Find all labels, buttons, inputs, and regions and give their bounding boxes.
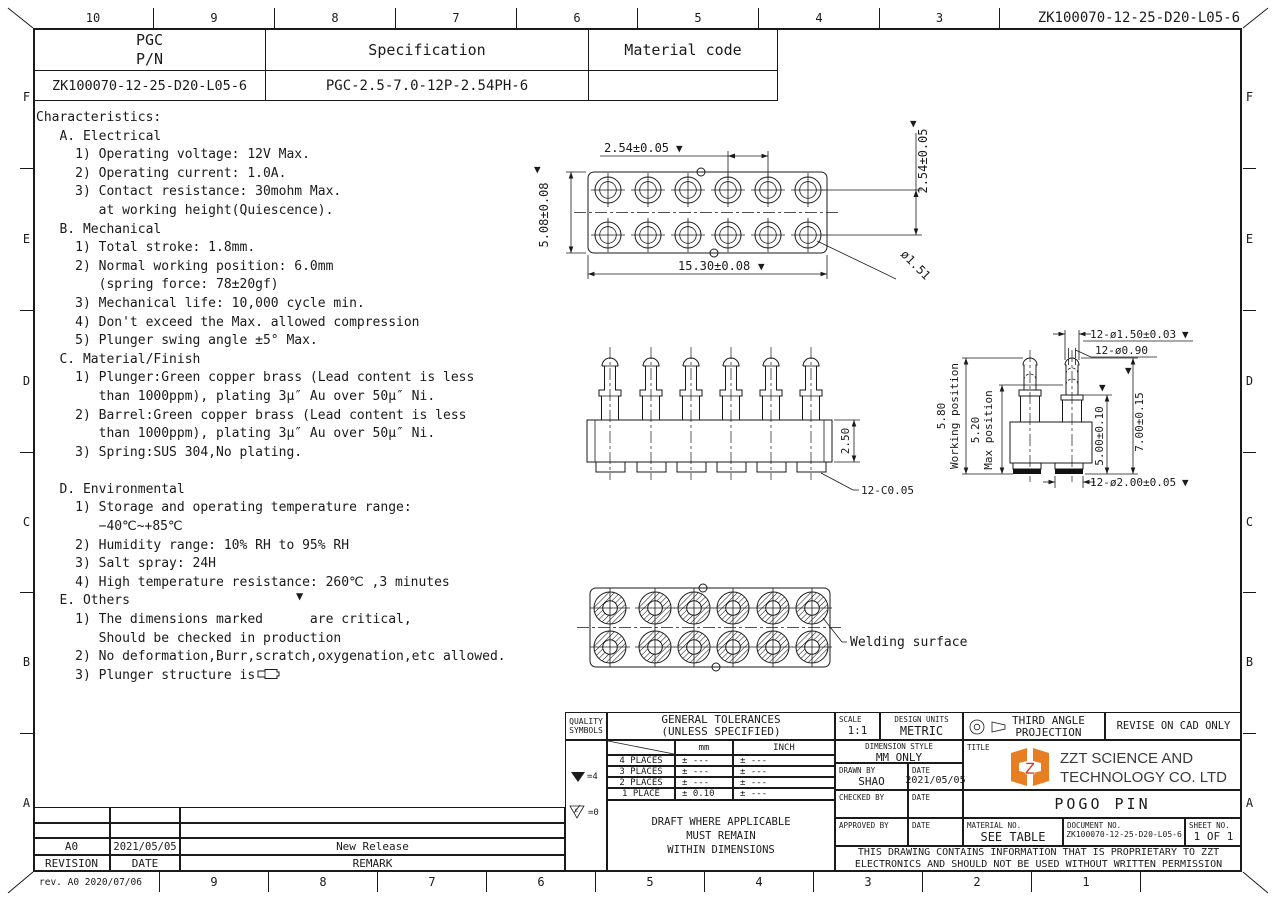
bottom-col-label: 6: [487, 872, 596, 892]
characteristics-line: (spring force: 78±20gf): [36, 276, 546, 295]
characteristics-line: 5) Plunger swing angle ±5° Max.: [36, 332, 546, 351]
sheet-no-value: 1 OF 1: [1186, 830, 1241, 843]
top-col-label: 5: [638, 8, 759, 28]
svg-text:7.00±0.15: 7.00±0.15: [1133, 392, 1146, 452]
row-letter: A: [1243, 796, 1256, 810]
draft-note-3: WITHIN DIMENSIONS: [667, 843, 774, 857]
tolerances-title-2: (UNLESS SPECIFIED): [661, 726, 780, 738]
checked-date-cell: DATE: [908, 790, 963, 818]
svg-text:2.50: 2.50: [839, 428, 852, 455]
third-angle-projection-icon: [968, 718, 1008, 736]
company-logo-icon: Z: [1009, 747, 1051, 787]
approved-by-cell: APPROVED BY: [835, 818, 908, 846]
characteristics-line: 3) Plunger structure is: [36, 667, 546, 686]
row-letter: F: [1243, 90, 1256, 104]
characteristics-line: 1) Operating voltage: 12V Max.: [36, 146, 546, 165]
top-col-label: 8: [275, 8, 396, 28]
svg-text:12-C0.05: 12-C0.05: [861, 484, 914, 497]
tol-row-mm: ± ---: [675, 766, 733, 777]
characteristics-line: 4) High temperature resistance: 260℃ ,3 …: [36, 574, 546, 593]
svg-text:▼: ▼: [1125, 364, 1132, 377]
spec-value-cell: PGC-2.5-7.0-12P-2.54PH-6: [265, 70, 589, 101]
top-view-drawing: 2.54±0.05 ▼ ▼ 2.54±0.05 ▼ 5.08±0.08 15.3…: [530, 105, 960, 305]
characteristics-line: 1) Total stroke: 1.8mm.: [36, 239, 546, 258]
design-units-label: DESIGN UNITS: [881, 713, 962, 724]
svg-text:▼: ▼: [534, 163, 541, 176]
row-letter: B: [1243, 655, 1256, 669]
draft-note: DRAFT WHERE APPLICABLE MUST REMAIN WITHI…: [607, 800, 835, 872]
characteristics-line: C. Material/Finish: [36, 351, 546, 370]
tolerances-title: GENERAL TOLERANCES (UNLESS SPECIFIED): [607, 712, 835, 740]
svg-text:12-ø1.50±0.03: 12-ø1.50±0.03: [1090, 328, 1176, 341]
svg-text:12-ø2.00±0.05: 12-ø2.00±0.05: [1090, 476, 1176, 489]
side-view-drawing: 2.50 12-C0.05: [555, 335, 925, 510]
end-view-drawing: 12-ø1.50±0.03 ▼ 12-ø0.90 ▼ 7.00±0.15 ▼ 5…: [935, 310, 1255, 510]
row-letter: E: [20, 232, 33, 246]
scale-value: 1:1: [836, 724, 879, 737]
pn-label-line1: PGC: [136, 31, 163, 50]
bottom-col-label: 2: [923, 872, 1032, 892]
row-letter: A: [20, 796, 33, 810]
quality-label-1: QUALITY: [569, 717, 603, 726]
approved-date-label: DATE: [909, 819, 962, 830]
company-line1: ZZT SCIENCE AND: [1060, 749, 1227, 768]
characteristics-line: −40℃~+85℃: [36, 518, 546, 537]
tol-row-inch: ± ---: [733, 777, 835, 788]
tol-row-label: 2 PLACES: [607, 777, 675, 788]
sheet-rev-note: rev. A0 2020/07/06: [33, 872, 160, 892]
proprietary-line2: ELECTRONICS AND SHOULD NOT BE USED WITHO…: [855, 859, 1222, 871]
characteristics-line: than 1000ppm), plating 3μ″ Au over 50μ″ …: [36, 388, 546, 407]
drawn-date-label: DATE: [909, 764, 962, 775]
tol-row-mm: ± ---: [675, 777, 733, 788]
document-no-cell: DOCUMENT NO. ZK100070-12-25-D20-L05-6: [1063, 818, 1185, 846]
checked-by-cell: CHECKED BY: [835, 790, 908, 818]
svg-text:Working position: Working position: [948, 363, 961, 469]
dimension-style-label: DIMENSION STYLE: [836, 741, 962, 751]
bottom-col-label: 1: [1032, 872, 1141, 892]
bottom-view-drawing: Welding surface: [575, 578, 975, 698]
pn-value-cell: ZK100070-12-25-D20-L05-6: [33, 70, 266, 101]
bottom-col-label: 4: [705, 872, 814, 892]
revision-empty-cell: [180, 823, 565, 838]
tol-row-label: 4 PLACES: [607, 755, 675, 766]
c-triangle-eq: =0: [588, 808, 599, 818]
characteristics-line: 3) Spring:SUS 304,No plating.: [36, 444, 546, 463]
characteristics-line: 3) Salt spray: 24H: [36, 555, 546, 574]
revision-empty-cell: [33, 823, 110, 838]
pn-label-line2: P/N: [136, 50, 163, 69]
characteristics-line: Characteristics:: [36, 109, 546, 128]
tol-row-inch: ± ---: [733, 766, 835, 777]
doc-number-top: ZK100070-12-25-D20-L05-6: [1000, 8, 1243, 28]
revision-table: A0 2021/05/05 New Release REVISION DATE …: [33, 807, 565, 872]
checked-date-label: DATE: [909, 791, 962, 802]
company-line2: TECHNOLOGY CO. LTD: [1060, 768, 1227, 787]
characteristics-line: 1) Plunger:Green copper brass (Lead cont…: [36, 369, 546, 388]
svg-text:▼: ▼: [910, 117, 917, 130]
scale-cell: SCALE 1:1: [835, 712, 880, 740]
draft-note-1: DRAFT WHERE APPLICABLE: [651, 815, 790, 829]
sheet-no-cell: SHEET NO. 1 OF 1: [1185, 818, 1242, 846]
tol-row-label: 3 PLACES: [607, 766, 675, 777]
svg-text:▼: ▼: [1182, 328, 1189, 341]
document-no-value: ZK100070-12-25-D20-L05-6: [1064, 830, 1184, 839]
characteristics-line: at working height(Quiescence).: [36, 202, 546, 221]
row-letter: E: [1243, 232, 1256, 246]
company-name: ZZT SCIENCE AND TECHNOLOGY CO. LTD: [1060, 749, 1227, 787]
svg-text:▼: ▼: [676, 142, 683, 155]
characteristics-line: 1) The dimensions marked are critical,: [36, 611, 546, 630]
left-border-band: F E D C B A: [20, 28, 33, 872]
part-title-cell: POGO PIN: [963, 790, 1242, 818]
revision-empty-cell: [110, 807, 180, 823]
scale-label: SCALE: [836, 713, 879, 724]
bottom-col-label: 3: [814, 872, 923, 892]
svg-text:Welding surface: Welding surface: [850, 635, 968, 650]
svg-text:▼: ▼: [1182, 476, 1189, 489]
revise-note-cell: REVISE ON CAD ONLY: [1105, 712, 1242, 740]
characteristics-line: B. Mechanical: [36, 221, 546, 240]
tolerances-col-mm: mm: [675, 740, 733, 755]
characteristics-line: 2) Humidity range: 10% RH to 95% RH: [36, 537, 546, 556]
bottom-border-band: rev. A0 2020/07/06 9 8 7 6 5 4 3 2 1: [33, 872, 1243, 892]
revision-remark-value: New Release: [180, 838, 565, 855]
proprietary-note: THIS DRAWING CONTAINS INFORMATION THAT I…: [835, 846, 1242, 872]
checked-by-label: CHECKED BY: [836, 791, 907, 802]
top-col-label: 10: [33, 8, 154, 28]
characteristics-line: 3) Contact resistance: 30mohm Max.: [36, 183, 546, 202]
characteristics-line: Should be checked in production: [36, 630, 546, 649]
company-title-cell: TITLE Z ZZT SCIENCE AND TECHNOLOGY CO. L…: [963, 740, 1242, 790]
revision-footer-remark: REMARK: [180, 855, 565, 872]
bottom-col-label: 8: [269, 872, 378, 892]
dimension-style-cell: DIMENSION STYLE MM ONLY: [835, 740, 963, 763]
c-triangle-icon: c: [569, 805, 587, 820]
drawn-date-value: 2021/05/05: [909, 775, 962, 786]
title-block: QUALITY SYMBOLS =4 c =0 GENERAL TOLERANC…: [565, 712, 1242, 872]
quality-symbols-body: =4 c =0: [565, 740, 607, 872]
quality-symbols-header: QUALITY SYMBOLS: [565, 712, 607, 740]
material-value-cell: [588, 70, 778, 101]
characteristics-line: [36, 462, 546, 481]
revision-footer-rev: REVISION: [33, 855, 110, 872]
tolerances-col-inch: INCH: [733, 740, 835, 755]
characteristics-line: 2) No deformation,Burr,scratch,oxygenati…: [36, 648, 546, 667]
approved-date-cell: DATE: [908, 818, 963, 846]
svg-text:Z: Z: [1025, 759, 1035, 778]
svg-text:5.20: 5.20: [969, 417, 982, 444]
characteristics-line: E. Others: [36, 592, 546, 611]
revision-empty-cell: [110, 823, 180, 838]
tol-row-inch: ± ---: [733, 788, 835, 800]
top-col-label: 7: [396, 8, 517, 28]
top-col-label: 3: [880, 8, 1000, 28]
characteristics-line: 3) Mechanical life: 10,000 cycle min.: [36, 295, 546, 314]
top-border-band: 10 9 8 7 6 5 4 3 ZK100070-12-25-D20-L05-…: [33, 8, 1243, 28]
revision-empty-cell: [33, 807, 110, 823]
characteristics-block: Characteristics: A. Electrical 1) Operat…: [36, 109, 546, 685]
projection-line2: PROJECTION: [1012, 727, 1085, 739]
document-no-label: DOCUMENT NO.: [1064, 819, 1184, 830]
proprietary-line1: THIS DRAWING CONTAINS INFORMATION THAT I…: [858, 847, 1219, 859]
projection-text: THIRD ANGLE PROJECTION: [1012, 715, 1085, 739]
revision-rev-value: A0: [33, 838, 110, 855]
svg-text:15.30±0.08: 15.30±0.08: [678, 259, 750, 273]
characteristics-line: 1) Storage and operating temperature ran…: [36, 499, 546, 518]
material-no-label: MATERIAL NO.: [964, 819, 1062, 830]
svg-text:12-ø0.90: 12-ø0.90: [1095, 344, 1148, 357]
row-letter: F: [20, 90, 33, 104]
svg-text:5.00±0.10: 5.00±0.10: [1093, 406, 1106, 466]
tol-row-label: 1 PLACE: [607, 788, 675, 800]
characteristics-line: than 1000ppm), plating 3μ″ Au over 50μ″ …: [36, 425, 546, 444]
svg-text:2.54±0.05: 2.54±0.05: [604, 141, 669, 155]
svg-text:ø1.51: ø1.51: [898, 247, 933, 282]
revision-empty-cell: [180, 807, 565, 823]
tol-row-mm: ± ---: [675, 755, 733, 766]
tol-row-inch: ± ---: [733, 755, 835, 766]
svg-text:5.80: 5.80: [935, 403, 948, 430]
characteristics-line: 2) Operating current: 1.0A.: [36, 165, 546, 184]
drawn-by-value: SHAO: [836, 775, 907, 788]
bottom-col-label: 7: [378, 872, 487, 892]
top-col-label: 4: [759, 8, 880, 28]
design-units-value: METRIC: [881, 724, 962, 738]
revision-date-value: 2021/05/05: [110, 838, 180, 855]
sheet-no-label: SHEET NO.: [1186, 819, 1241, 830]
top-col-label: 6: [517, 8, 638, 28]
row-letter: C: [20, 515, 33, 529]
svg-text:Max position: Max position: [982, 390, 995, 469]
spec-header-cell: Specification: [265, 28, 589, 71]
revision-footer-date: DATE: [110, 855, 180, 872]
draft-note-2: MUST REMAIN: [686, 829, 756, 843]
characteristics-line: 2) Normal working position: 6.0mm: [36, 258, 546, 277]
svg-text:▼: ▼: [758, 260, 765, 273]
svg-text:c: c: [575, 807, 579, 814]
row-letter: D: [20, 374, 33, 388]
material-no-cell: MATERIAL NO. SEE TABLE: [963, 818, 1063, 846]
row-letter: C: [1243, 515, 1256, 529]
drawn-by-label: DRAWN BY: [836, 764, 907, 775]
characteristics-line: D. Environmental: [36, 481, 546, 500]
drawn-by-cell: DRAWN BY SHAO: [835, 763, 908, 790]
bottom-col-label: 9: [160, 872, 269, 892]
projection-cell: THIRD ANGLE PROJECTION: [963, 712, 1105, 740]
critical-triangle-eq: =4: [587, 772, 598, 782]
characteristics-line: A. Electrical: [36, 128, 546, 147]
tol-row-mm: ± 0.10: [675, 788, 733, 800]
bottom-col-label: 5: [596, 872, 705, 892]
plunger-structure-icon: [256, 668, 282, 682]
critical-mark-triangle: ▼: [296, 589, 303, 603]
tolerances-diagonal-cell: [607, 740, 675, 755]
design-units-cell: DESIGN UNITS METRIC: [880, 712, 963, 740]
row-letter: B: [20, 655, 33, 669]
top-col-label: 9: [154, 8, 275, 28]
material-header-cell: Material code: [588, 28, 778, 71]
engineering-drawing-sheet: { "sheet": { "doc_number": "ZK100070-12-…: [0, 0, 1275, 902]
quality-label-2: SYMBOLS: [569, 726, 603, 735]
svg-text:▼: ▼: [1099, 381, 1106, 394]
material-no-value: SEE TABLE: [964, 830, 1062, 844]
svg-text:2.54±0.05: 2.54±0.05: [916, 128, 930, 193]
approved-by-label: APPROVED BY: [836, 819, 907, 830]
characteristics-line: 4) Don't exceed the Max. allowed compres…: [36, 314, 546, 333]
critical-triangle-icon: [570, 771, 586, 783]
characteristics-line: 2) Barrel:Green copper brass (Lead conte…: [36, 407, 546, 426]
svg-text:5.08±0.08: 5.08±0.08: [537, 182, 551, 247]
drawn-date-cell: DATE 2021/05/05: [908, 763, 963, 790]
pn-header-cell: PGC P/N: [33, 28, 266, 71]
